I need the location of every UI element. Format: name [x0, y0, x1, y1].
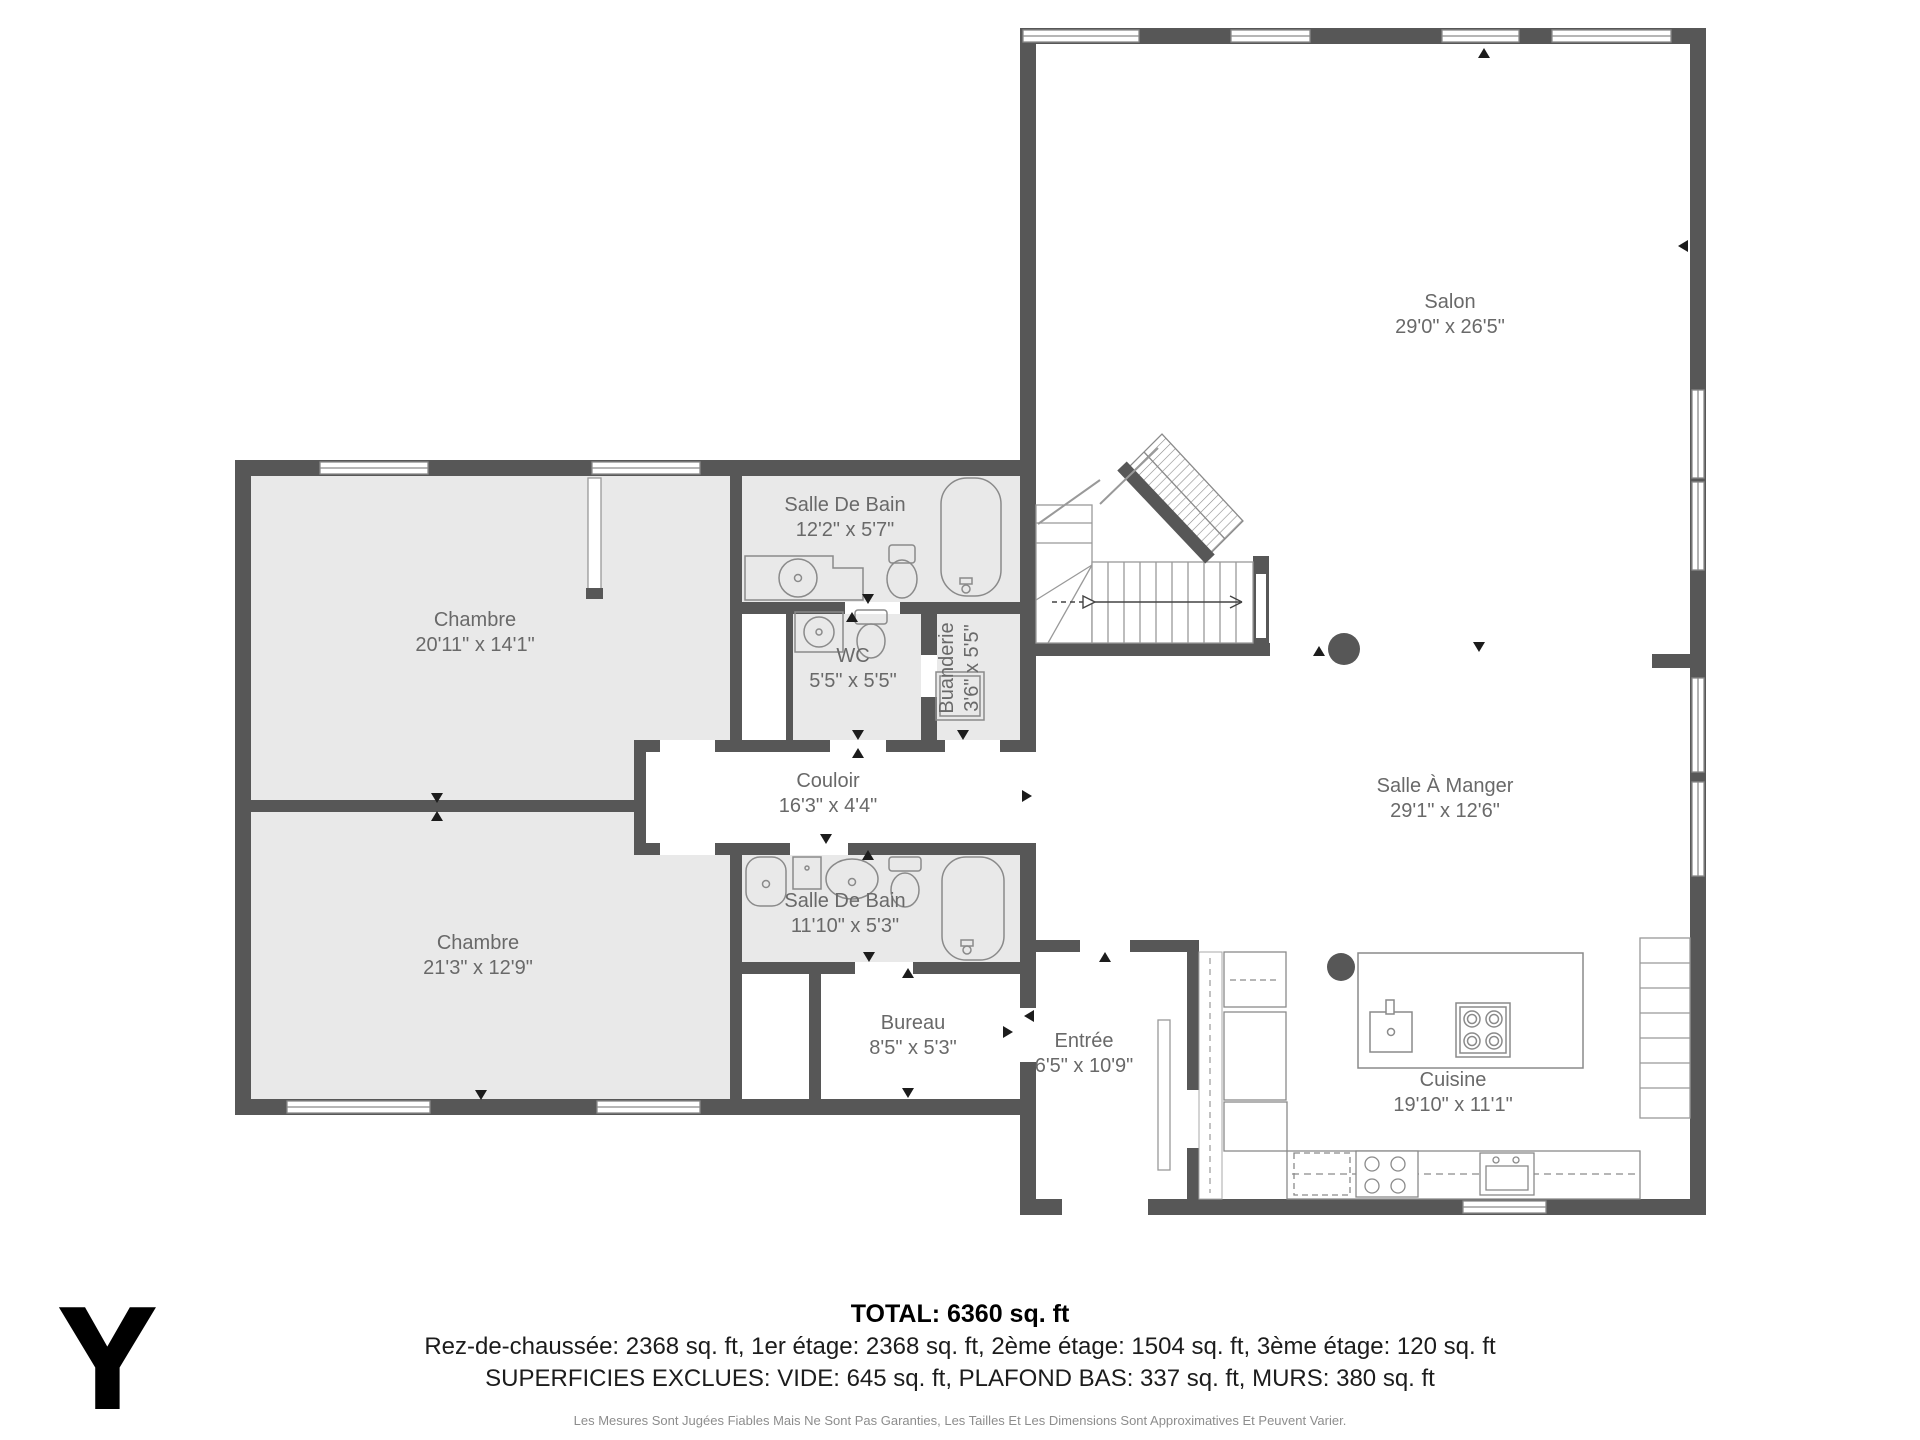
- staircase-kitchen: [1640, 938, 1690, 1118]
- sink-icon: [1480, 1153, 1534, 1195]
- brand-logo-y: Y: [60, 1288, 155, 1430]
- disclaimer-text: Les Mesures Sont Jugées Fiables Mais Ne …: [0, 1413, 1920, 1428]
- fridge-icon: [1224, 1012, 1286, 1100]
- stove-icon: [1356, 1151, 1418, 1197]
- room-label-buanderie: Buanderie3'6" x 5'5": [935, 622, 985, 713]
- room-label-salle-a-manger: Salle À Manger29'1" x 12'6": [1377, 774, 1514, 824]
- staircase-main: [1036, 434, 1266, 643]
- total-area-text: TOTAL: 6360 sq. ft: [0, 1300, 1920, 1329]
- excluded-areas-text: SUPERFICIES EXCLUES: VIDE: 645 sq. ft, P…: [0, 1365, 1920, 1393]
- room-label-salon: Salon29'0" x 26'5": [1395, 290, 1505, 340]
- floor-plan-page: Salon29'0" x 26'5" Chambre20'11" x 14'1"…: [0, 0, 1920, 1440]
- room-label-chambre-1: Chambre20'11" x 14'1": [415, 608, 534, 658]
- room-label-salle-de-bain-2: Salle De Bain11'10" x 5'3": [784, 889, 905, 939]
- room-label-wc: WC5'5" x 5'5": [809, 644, 896, 694]
- room-label-salle-de-bain-1: Salle De Bain12'2" x 5'7": [784, 493, 905, 543]
- floor-areas-text: Rez-de-chaussée: 2368 sq. ft, 1er étage:…: [0, 1333, 1920, 1361]
- column-icons: [1327, 633, 1360, 981]
- room-label-cuisine: Cuisine19'10" x 11'1": [1393, 1068, 1512, 1118]
- room-label-bureau: Bureau8'5" x 5'3": [869, 1011, 956, 1061]
- room-label-entree: Entrée6'5" x 10'9": [1035, 1029, 1134, 1079]
- kitchen-island: [1358, 953, 1583, 1068]
- island-sink-icon: [1370, 1012, 1412, 1052]
- room-label-chambre-2: Chambre21'3" x 12'9": [423, 931, 533, 981]
- floor-plan-drawing: [0, 0, 1920, 1440]
- room-label-couloir: Couloir16'3" x 4'4": [779, 769, 878, 819]
